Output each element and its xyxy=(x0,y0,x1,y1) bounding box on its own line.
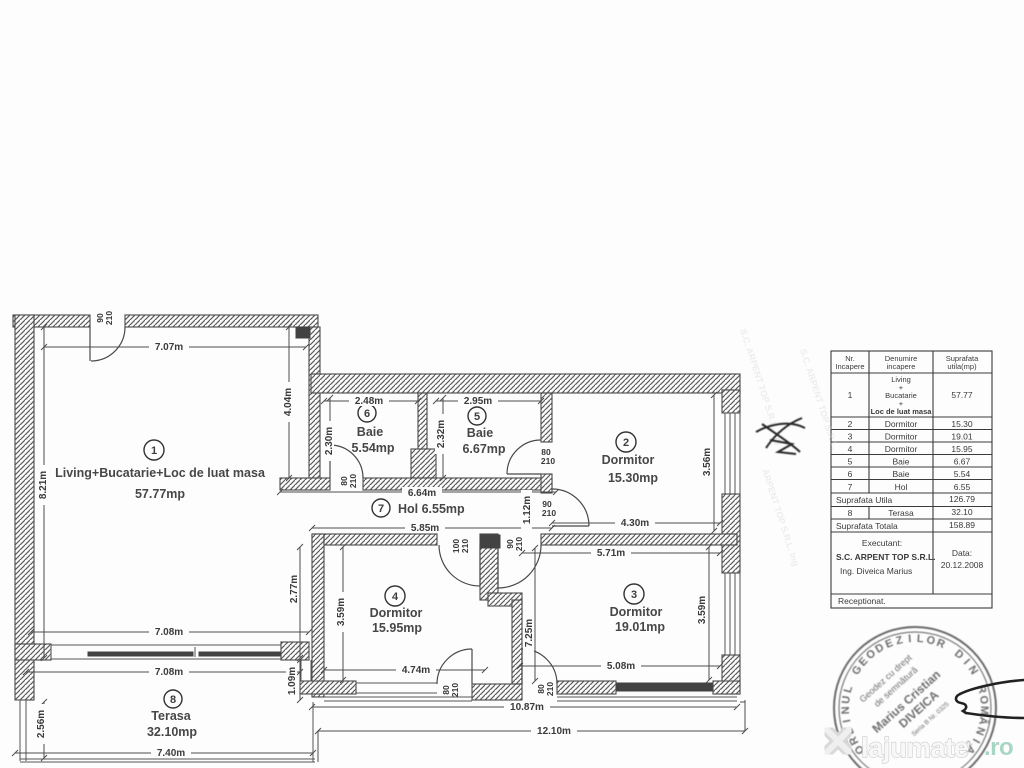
svg-text:Loc de luat masa: Loc de luat masa xyxy=(871,407,933,416)
svg-text:20.12.2008: 20.12.2008 xyxy=(941,560,984,570)
svg-text:1.09m: 1.09m xyxy=(287,667,298,695)
svg-text:Suprafata Totala: Suprafata Totala xyxy=(836,521,898,531)
svg-text:6.55: 6.55 xyxy=(954,482,971,492)
svg-text:6.67: 6.67 xyxy=(954,457,971,467)
svg-text:.ro: .ro xyxy=(984,734,1013,761)
svg-text:Data:: Data: xyxy=(952,548,972,558)
svg-text:Receptionat.: Receptionat. xyxy=(838,596,886,606)
svg-text:4.74m: 4.74m xyxy=(402,665,430,676)
svg-text:4.30m: 4.30m xyxy=(621,518,649,529)
svg-text:15.30mp: 15.30mp xyxy=(608,471,658,485)
svg-text:8: 8 xyxy=(848,508,853,518)
svg-text:57.77: 57.77 xyxy=(951,390,973,400)
svg-text:Baie: Baie xyxy=(892,457,909,467)
svg-text:7.40m: 7.40m xyxy=(157,748,185,759)
svg-text:5: 5 xyxy=(848,457,853,467)
svg-text:Hol: Hol xyxy=(895,482,908,492)
svg-text:4: 4 xyxy=(848,444,853,454)
svg-text:5: 5 xyxy=(474,411,480,423)
svg-text:1: 1 xyxy=(848,390,853,400)
svg-text:10.87m: 10.87m xyxy=(510,702,544,713)
svg-text:6: 6 xyxy=(364,408,370,420)
svg-text:2.77m: 2.77m xyxy=(289,575,300,603)
svg-text:5.54: 5.54 xyxy=(954,469,971,479)
svg-text:15.30: 15.30 xyxy=(951,419,973,429)
svg-text:210: 210 xyxy=(104,311,114,325)
svg-text:3: 3 xyxy=(848,432,853,442)
svg-text:2.48m: 2.48m xyxy=(355,396,383,407)
svg-text:3.59m: 3.59m xyxy=(697,596,708,624)
svg-text:L: L xyxy=(916,633,924,646)
svg-text:Hol 6.55mp: Hol 6.55mp xyxy=(398,502,465,516)
svg-text:Baie: Baie xyxy=(892,469,909,479)
svg-text:6.67mp: 6.67mp xyxy=(462,442,505,456)
svg-text:1.12m: 1.12m xyxy=(522,496,533,524)
svg-text:6: 6 xyxy=(848,469,853,479)
svg-text:2.32m: 2.32m xyxy=(436,420,447,448)
svg-text:Dormitor: Dormitor xyxy=(610,605,663,619)
svg-text:2.56m: 2.56m xyxy=(36,710,47,738)
svg-text:32.10mp: 32.10mp xyxy=(147,725,197,739)
svg-text:Terasa: Terasa xyxy=(888,508,914,518)
svg-text:7: 7 xyxy=(378,503,384,515)
svg-text:57.77mp: 57.77mp xyxy=(135,487,185,501)
svg-text:4.04m: 4.04m xyxy=(283,388,294,416)
svg-text:3: 3 xyxy=(631,589,637,601)
svg-text:5.54mp: 5.54mp xyxy=(351,441,394,455)
svg-text:Terasa: Terasa xyxy=(151,709,191,723)
svg-text:Baie: Baie xyxy=(467,426,493,440)
svg-text:incapere: incapere xyxy=(887,362,916,371)
svg-text:1: 1 xyxy=(151,445,157,457)
svg-text:Dormitor: Dormitor xyxy=(602,453,655,467)
svg-text:Dormitor: Dormitor xyxy=(370,606,423,620)
svg-text:210: 210 xyxy=(460,539,470,553)
svg-text:Ing. Diveica Marius: Ing. Diveica Marius xyxy=(840,566,912,576)
svg-text:8.21m: 8.21m xyxy=(38,471,49,499)
svg-text:5.08m: 5.08m xyxy=(607,661,635,672)
svg-text:8: 8 xyxy=(170,694,176,706)
svg-text:Dormitor: Dormitor xyxy=(885,432,918,442)
svg-text:19.01: 19.01 xyxy=(951,432,973,442)
svg-text:N: N xyxy=(840,706,852,714)
svg-text:4: 4 xyxy=(392,591,399,603)
svg-text:Dormitor: Dormitor xyxy=(885,444,918,454)
svg-text:210: 210 xyxy=(545,682,555,696)
svg-text:U: U xyxy=(840,695,853,704)
svg-text:7.07m: 7.07m xyxy=(155,342,183,353)
svg-text:210: 210 xyxy=(450,683,460,697)
svg-text:7.08m: 7.08m xyxy=(155,667,183,678)
svg-text:Executant:: Executant: xyxy=(862,538,902,548)
svg-text:158.89: 158.89 xyxy=(949,520,975,530)
svg-text:S.C. ARPENT TOP S.R.L.: S.C. ARPENT TOP S.R.L. xyxy=(836,552,936,562)
svg-text:5.71m: 5.71m xyxy=(597,548,625,559)
svg-text:6.64m: 6.64m xyxy=(408,488,436,499)
svg-text:lajumate: lajumate xyxy=(861,732,969,763)
svg-text:utila(mp): utila(mp) xyxy=(947,362,977,371)
svg-text:7: 7 xyxy=(848,482,853,492)
svg-text:15.95mp: 15.95mp xyxy=(372,621,422,635)
svg-text:210: 210 xyxy=(542,508,556,518)
svg-text:3.56m: 3.56m xyxy=(702,448,713,476)
svg-text:32.10: 32.10 xyxy=(951,507,973,517)
svg-text:19.01mp: 19.01mp xyxy=(615,620,665,634)
svg-text:Dormitor: Dormitor xyxy=(885,419,918,429)
svg-text:210: 210 xyxy=(348,474,358,488)
svg-text:Incapere: Incapere xyxy=(835,362,864,371)
svg-text:12.10m: 12.10m xyxy=(537,726,571,737)
svg-text:Living+Bucatarie+Loc de luat m: Living+Bucatarie+Loc de luat masa xyxy=(55,466,266,480)
svg-text:2.95m: 2.95m xyxy=(464,396,492,407)
svg-text:7.08m: 7.08m xyxy=(155,627,183,638)
svg-text:7.25m: 7.25m xyxy=(524,619,535,647)
svg-text:Baie: Baie xyxy=(357,425,383,439)
svg-text:Suprafata Utila: Suprafata Utila xyxy=(836,495,892,505)
svg-text:15.95: 15.95 xyxy=(951,444,973,454)
svg-text:3.59m: 3.59m xyxy=(336,598,347,626)
svg-text:210: 210 xyxy=(514,537,524,551)
svg-text:2.30m: 2.30m xyxy=(324,427,335,455)
svg-text:2: 2 xyxy=(623,437,629,449)
svg-text:210: 210 xyxy=(541,456,555,466)
svg-text:126.79: 126.79 xyxy=(949,494,975,504)
svg-text:2: 2 xyxy=(848,419,853,429)
svg-text:5.85m: 5.85m xyxy=(411,523,439,534)
